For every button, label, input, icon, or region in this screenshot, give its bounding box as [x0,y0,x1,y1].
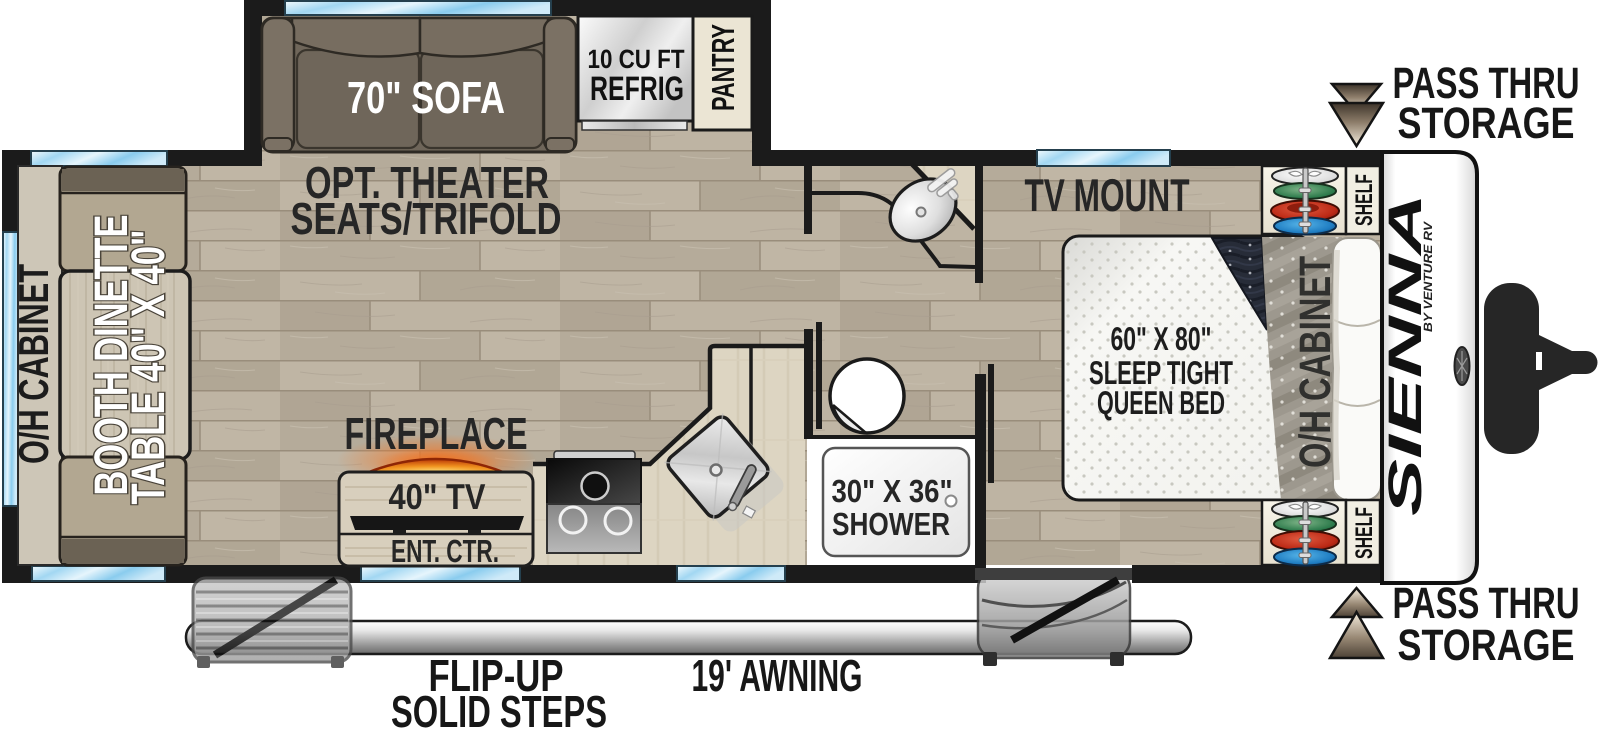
svg-text:19' AWNING: 19' AWNING [692,650,863,701]
svg-text:SHELF: SHELF [1351,174,1378,226]
svg-text:SHELF: SHELF [1351,507,1378,559]
svg-text:60" X 80": 60" X 80" [1111,320,1212,357]
svg-text:SHOWER: SHOWER [832,506,950,542]
svg-text:BY VENTURE RV: BY VENTURE RV [1421,221,1435,332]
svg-text:TABLE 40" X 40": TABLE 40" X 40" [121,230,174,505]
svg-text:STORAGE: STORAGE [1398,99,1575,148]
svg-text:30" X 36": 30" X 36" [832,473,953,509]
svg-text:SEATS/TRIFOLD: SEATS/TRIFOLD [291,193,562,244]
svg-text:SOLID STEPS: SOLID STEPS [391,686,607,732]
svg-text:QUEEN BED: QUEEN BED [1097,384,1225,421]
svg-text:FIREPLACE: FIREPLACE [345,408,528,459]
svg-text:REFRIG: REFRIG [590,70,684,108]
svg-text:O/H CABINET: O/H CABINET [10,264,57,464]
svg-text:PANTRY: PANTRY [705,24,741,111]
svg-text:STORAGE: STORAGE [1398,621,1575,670]
svg-text:40" TV: 40" TV [389,476,486,517]
svg-text:O/H CABINET: O/H CABINET [1291,256,1340,468]
svg-text:ENT. CTR.: ENT. CTR. [391,533,499,569]
svg-text:TV MOUNT: TV MOUNT [1025,169,1190,221]
svg-text:70" SOFA: 70" SOFA [347,72,505,123]
